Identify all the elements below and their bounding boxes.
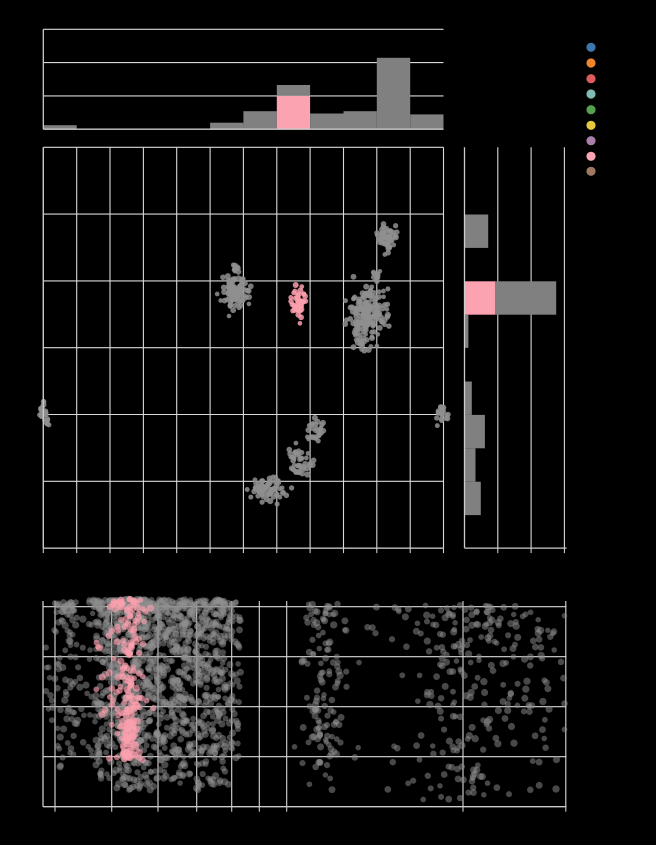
strip-point (561, 700, 568, 707)
strip-point (157, 767, 164, 774)
strip-point (323, 608, 329, 614)
strip-point (229, 730, 236, 737)
strip-point (450, 614, 456, 620)
strip-point (539, 726, 546, 733)
strip-point (463, 617, 469, 623)
strip-point (437, 631, 443, 637)
strip-point (216, 779, 223, 786)
strip-point (121, 774, 128, 781)
strip-point (57, 762, 64, 769)
scatter-point (385, 312, 391, 318)
strip-point (162, 745, 168, 751)
scatter-point (289, 485, 294, 490)
strip-point (292, 744, 298, 750)
scatter-point (352, 330, 358, 336)
strip-point (331, 610, 338, 617)
strip-point (542, 745, 548, 751)
strip-point (65, 740, 71, 746)
scatter-point (381, 294, 386, 299)
histogram-bar (277, 96, 310, 129)
strip-point (187, 771, 193, 777)
strip-point (532, 732, 539, 739)
strip-point (136, 650, 142, 656)
strip-point (195, 779, 201, 785)
strip-point (202, 651, 209, 658)
scatter-point (244, 287, 249, 292)
strip-point (430, 613, 436, 619)
strip-point (121, 647, 128, 654)
strip-point (467, 637, 473, 643)
strip-point (115, 780, 122, 787)
strip-point (468, 604, 474, 610)
strip-point (111, 656, 117, 662)
strip-point (450, 702, 456, 708)
strip-point (218, 605, 225, 612)
strip-point (141, 619, 147, 625)
scatter-point (378, 318, 383, 323)
strip-point (138, 774, 144, 780)
strip-point (444, 605, 450, 611)
strip-point (480, 746, 486, 752)
strip-point (521, 708, 527, 714)
strip-point (324, 762, 330, 768)
strip-point (63, 715, 70, 722)
strip-point (127, 650, 133, 656)
scatter-point (245, 487, 250, 492)
histogram-bar (465, 482, 481, 515)
strip-point (143, 626, 149, 632)
strip-point (323, 737, 328, 742)
strip-point (463, 626, 470, 633)
strip-point (212, 708, 219, 715)
strip-point (490, 667, 497, 674)
series-green-legend-dot-icon (586, 105, 595, 114)
strip-point (140, 641, 146, 647)
strip-point (506, 791, 512, 797)
strip-point (164, 754, 171, 761)
strip-point (155, 613, 161, 619)
strip-point (59, 617, 65, 623)
strip-point (164, 598, 171, 605)
strip-point (180, 632, 187, 639)
series-blue-legend-dot-icon (586, 43, 595, 52)
scatter-point (304, 472, 310, 478)
strip-point (304, 695, 310, 701)
strip-point (190, 681, 196, 687)
strip-point (47, 675, 53, 681)
strip-point (198, 751, 204, 757)
strip-point (335, 668, 342, 675)
strip-point (391, 604, 398, 611)
strip-point (236, 699, 242, 705)
scatter-point (386, 323, 391, 328)
strip-point (539, 698, 546, 705)
strip-point (167, 732, 174, 739)
strip-point (450, 689, 456, 695)
scatter-point (316, 438, 321, 443)
strip-point (546, 706, 553, 713)
strip-point (523, 611, 529, 617)
strip-point (173, 717, 180, 724)
strip-point (203, 676, 210, 683)
strip-point (160, 668, 166, 674)
strip-point (527, 662, 533, 668)
strip-point (236, 626, 243, 633)
scatter-point (287, 451, 293, 457)
strip-point (216, 703, 222, 709)
scatter-point (274, 493, 279, 498)
strip-point (478, 634, 484, 640)
strip-point (60, 725, 67, 732)
strip-point (207, 709, 213, 715)
strip-point (70, 733, 76, 739)
strip-point (474, 621, 481, 628)
strip-point (484, 603, 491, 610)
strip-point (150, 705, 156, 711)
strip-point (481, 792, 487, 798)
strip-point (394, 745, 401, 752)
strip-point (150, 639, 156, 645)
strip-point (417, 757, 423, 763)
strip-point (457, 666, 463, 672)
strip-point (95, 644, 101, 650)
strip-point (325, 646, 332, 653)
strip-point (434, 645, 440, 651)
strip-point (195, 762, 201, 768)
strip-point (118, 617, 124, 623)
histogram-bar (210, 123, 243, 130)
strip-point (198, 719, 205, 726)
strip-point (502, 715, 509, 722)
main-scatter-plot (37, 147, 451, 553)
strip-point (60, 754, 66, 760)
scatter-point (391, 243, 396, 248)
strip-point (476, 654, 482, 660)
strip-point (163, 634, 169, 640)
strip-point (219, 675, 226, 682)
strip-point (75, 664, 81, 670)
strip-point (92, 619, 98, 625)
strip-point (225, 620, 231, 626)
strip-point (61, 622, 68, 629)
strip-point (117, 765, 123, 771)
scatter-point (306, 451, 311, 456)
strip-point (558, 659, 565, 666)
strip-point (522, 686, 529, 693)
strip-point (203, 758, 210, 765)
bottom-strip-plot (43, 596, 568, 812)
strip-point (510, 645, 517, 652)
strip-point (222, 740, 229, 747)
strip-point (207, 776, 213, 782)
histogram-bar (410, 114, 443, 129)
strip-point (485, 780, 491, 786)
strip-point (177, 736, 184, 743)
strip-point (78, 706, 84, 712)
strip-point (535, 630, 542, 637)
strip-point (209, 604, 216, 611)
scatter-point (377, 311, 382, 316)
strip-point (389, 636, 395, 642)
strip-point (146, 632, 153, 639)
scatter-point (369, 330, 374, 335)
strip-point (113, 638, 120, 645)
strip-point (158, 621, 165, 628)
strip-point (312, 706, 319, 713)
strip-point (430, 751, 436, 757)
scatter-point (371, 319, 376, 324)
strip-point (169, 616, 176, 623)
strip-point (158, 628, 165, 635)
histogram-bar (310, 114, 343, 130)
scatter-point (235, 296, 241, 302)
strip-point (141, 712, 148, 719)
strip-point (462, 606, 469, 613)
strip-point (54, 603, 60, 609)
scatter-point (349, 304, 355, 310)
strip-point (336, 721, 343, 728)
strip-point (532, 644, 539, 651)
strip-point (182, 762, 189, 769)
strip-point (85, 744, 91, 750)
strip-point (127, 725, 136, 734)
strip-point (199, 643, 204, 648)
strip-point (317, 646, 323, 652)
scatter-point (253, 481, 258, 486)
strip-point (402, 613, 409, 620)
strip-point (526, 708, 533, 715)
strip-point (307, 781, 313, 787)
jointplot-figure (0, 0, 656, 845)
strip-point (164, 701, 170, 707)
strip-point (135, 761, 141, 767)
strip-point (93, 655, 99, 661)
strip-point (505, 701, 511, 707)
strip-point (454, 658, 460, 664)
scatter-point (310, 434, 316, 440)
scatter-point (367, 314, 373, 320)
strip-point (61, 697, 68, 704)
strip-point (461, 672, 468, 679)
scatter-point (434, 415, 439, 420)
strip-point (194, 651, 200, 657)
strip-point (150, 669, 157, 676)
strip-point (466, 732, 473, 739)
scatter-point (351, 274, 357, 280)
strip-point (229, 746, 235, 752)
strip-point (424, 692, 431, 699)
strip-point (322, 703, 328, 709)
strip-point (185, 730, 192, 737)
strip-point (426, 648, 432, 654)
strip-point (423, 612, 430, 619)
scatter-point (227, 303, 232, 308)
strip-point (543, 679, 550, 686)
scatter-point (218, 298, 223, 303)
scatter-point (353, 321, 359, 327)
strip-point (317, 759, 324, 766)
scatter-point (299, 450, 304, 455)
strip-point (204, 685, 210, 691)
scatter-point (248, 283, 254, 289)
strip-point (229, 717, 235, 723)
strip-point (438, 607, 444, 613)
strip-point (180, 687, 186, 693)
strip-point (66, 678, 73, 685)
strip-point (428, 785, 434, 791)
strip-point (492, 639, 498, 645)
strip-point (310, 617, 316, 623)
strip-point (417, 673, 423, 679)
strip-point (329, 786, 336, 793)
strip-point (67, 750, 73, 756)
right-marginal-histogram (465, 147, 567, 553)
scatter-point (344, 317, 349, 322)
strip-point (106, 775, 112, 781)
strip-point (458, 650, 463, 655)
strip-point (309, 637, 315, 643)
strip-point (496, 622, 502, 628)
strip-point (127, 785, 134, 792)
scatter-point (299, 456, 304, 461)
scatter-point (293, 295, 298, 300)
strip-point (53, 629, 59, 635)
strip-point (55, 726, 60, 731)
strip-point (97, 611, 104, 618)
strip-point (178, 613, 185, 620)
scatter-point (229, 297, 234, 302)
strip-point (488, 617, 495, 624)
strip-point (156, 721, 162, 727)
strip-point (331, 748, 337, 754)
scatter-point (226, 291, 231, 296)
strip-point (54, 685, 60, 691)
scatter-point (435, 423, 440, 428)
strip-point (500, 682, 506, 688)
strip-point (469, 724, 476, 731)
scatter-point (361, 313, 367, 319)
strip-point (187, 744, 194, 751)
strip-point (306, 649, 313, 656)
strip-point (477, 773, 484, 780)
scatter-point (232, 276, 237, 281)
strip-point (110, 602, 116, 608)
strip-point (150, 783, 157, 790)
strip-point (177, 780, 183, 786)
strip-point (95, 751, 101, 757)
strip-point (403, 643, 410, 650)
strip-point (128, 642, 134, 648)
strip-point (309, 734, 316, 741)
strip-point (170, 684, 177, 691)
strip-point (527, 653, 534, 660)
strip-point (327, 775, 333, 781)
scatter-point (301, 292, 306, 297)
scatter-point (271, 486, 277, 492)
strip-point (96, 758, 103, 765)
strip-point (193, 701, 199, 707)
strip-point (131, 702, 140, 711)
scatter-point (375, 344, 380, 349)
strip-point (155, 680, 161, 686)
strip-point (457, 602, 464, 609)
strip-point (118, 709, 125, 716)
strip-point (87, 712, 93, 718)
strip-point (154, 774, 161, 781)
strip-point (156, 652, 163, 659)
strip-point (424, 638, 431, 645)
strip-point (66, 637, 73, 644)
strip-point (334, 654, 340, 660)
strip-point (99, 600, 105, 606)
histogram-bar (344, 111, 377, 129)
scatter-point (373, 301, 378, 306)
strip-point (468, 660, 474, 666)
strip-point (87, 647, 93, 653)
scatter-point (343, 298, 348, 303)
strip-point (143, 781, 150, 788)
scatter-point (299, 467, 304, 472)
strip-point (109, 722, 115, 728)
scatter-point (381, 239, 387, 245)
strip-point (231, 710, 238, 717)
strip-point (451, 643, 458, 650)
strip-point (198, 668, 205, 675)
strip-point (160, 736, 166, 742)
histogram-bar (377, 58, 410, 129)
strip-point (337, 740, 343, 746)
strip-point (501, 646, 507, 652)
strip-point (227, 661, 234, 668)
strip-point (327, 707, 334, 714)
strip-point (115, 627, 121, 633)
scatter-point (275, 501, 280, 506)
strip-point (405, 606, 412, 613)
strip-point (182, 599, 188, 605)
strip-point (138, 781, 144, 787)
strip-point (101, 734, 107, 740)
strip-point (317, 743, 324, 750)
histogram-bar (465, 448, 476, 481)
scatter-point (309, 422, 314, 427)
scatter-point (305, 434, 310, 439)
strip-point (124, 607, 131, 614)
strip-point (512, 603, 519, 610)
strip-point (160, 708, 166, 714)
strip-point (108, 685, 115, 692)
strip-point (313, 698, 320, 705)
strip-point (304, 619, 310, 625)
strip-point (74, 717, 81, 724)
strip-point (203, 605, 210, 612)
strip-point (234, 720, 241, 727)
strip-point (191, 666, 197, 672)
scatter-point (354, 338, 359, 343)
strip-point (56, 746, 62, 752)
histogram-bar (495, 281, 556, 314)
strip-point (413, 742, 420, 749)
strip-point (235, 661, 241, 667)
scatter-point (294, 441, 299, 446)
strip-point (63, 689, 69, 695)
scatter-point (351, 296, 356, 301)
strip-point (494, 784, 501, 791)
strip-point (186, 674, 192, 680)
strip-point (197, 679, 203, 685)
strip-point (74, 642, 80, 648)
strip-point (450, 628, 457, 635)
strip-point (165, 610, 171, 616)
